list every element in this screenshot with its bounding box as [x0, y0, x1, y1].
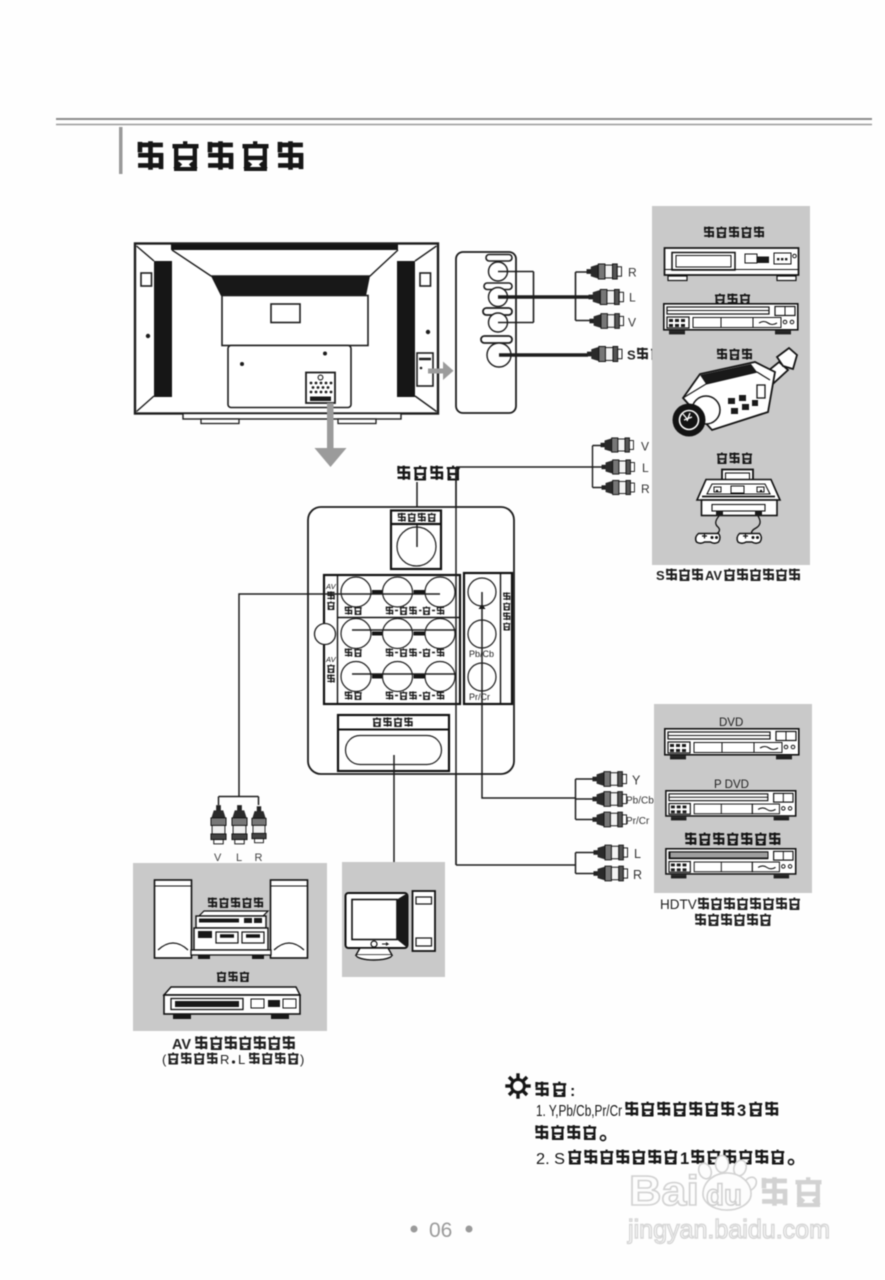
svg-text::: : [570, 1083, 575, 1100]
svg-text:3: 3 [737, 1102, 746, 1120]
svg-text:V: V [214, 852, 222, 864]
svg-text:R: R [255, 852, 263, 864]
svg-text:2. S: 2. S [536, 1151, 565, 1168]
svg-text:L: L [236, 852, 242, 864]
svg-text:1. Y,Pb/Cb,Pr/Cr: 1. Y,Pb/Cb,Pr/Cr [536, 1103, 622, 1120]
svg-text:P DVD: P DVD [714, 779, 749, 791]
svg-text:R: R [628, 266, 637, 280]
svg-text:S: S [627, 348, 636, 363]
svg-text:Y: Y [632, 774, 641, 788]
svg-text:V: V [641, 440, 649, 454]
svg-text:L: L [642, 461, 649, 475]
svg-text:L: L [238, 1052, 245, 1067]
svg-text:DVD: DVD [719, 717, 743, 729]
svg-text:R: R [633, 868, 642, 882]
svg-text:06: 06 [429, 1219, 452, 1242]
svg-text:1: 1 [680, 1150, 689, 1168]
svg-text:Pr/Cr: Pr/Cr [626, 816, 650, 827]
svg-text:AV: AV [705, 568, 722, 583]
svg-text:V: V [628, 316, 636, 330]
svg-text:L: L [634, 847, 641, 861]
svg-text:jingyan.baidu.com: jingyan.baidu.com [627, 1214, 830, 1244]
svg-text:AV: AV [172, 1037, 191, 1053]
svg-text:R: R [641, 482, 650, 496]
svg-text:Pr/Cr: Pr/Cr [469, 692, 490, 702]
svg-text:(: ( [162, 1052, 167, 1067]
svg-text:Bai: Bai [629, 1167, 699, 1214]
svg-text:AV: AV [325, 655, 337, 664]
svg-text:L: L [629, 291, 636, 305]
svg-text:AV: AV [325, 582, 337, 591]
svg-text:): ) [300, 1052, 304, 1067]
svg-text:S: S [656, 568, 665, 583]
svg-text:HDTV: HDTV [660, 897, 697, 912]
svg-text:R: R [220, 1052, 229, 1067]
svg-text:du: du [706, 1179, 742, 1212]
svg-text:Pb/Cb: Pb/Cb [626, 796, 654, 807]
